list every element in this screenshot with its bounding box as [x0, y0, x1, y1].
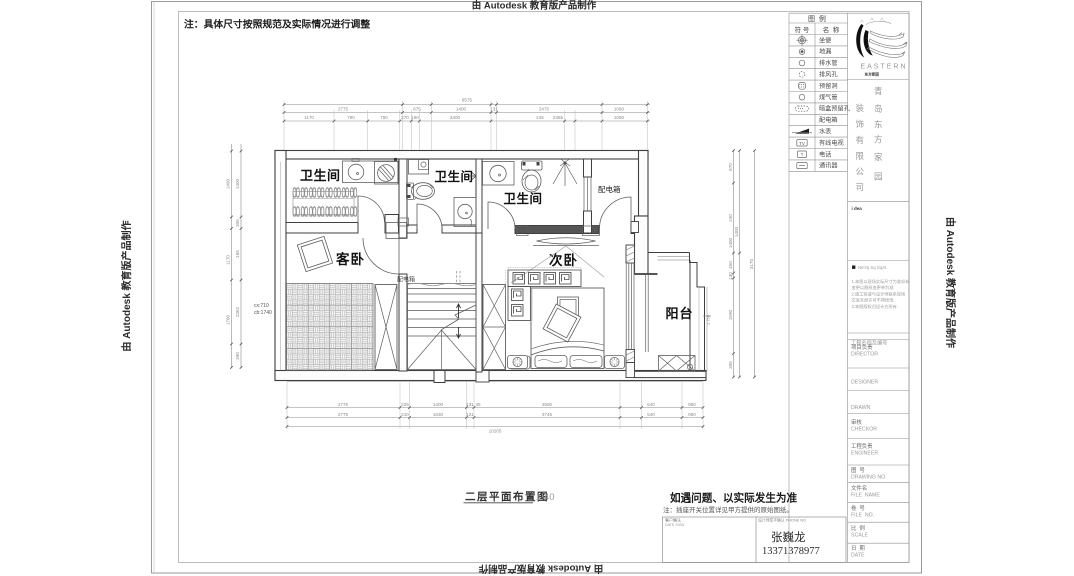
svg-text:排水管: 排水管 — [819, 59, 838, 67]
svg-text:由 Autodesk 教育版产品制作: 由 Autodesk 教育版产品制作 — [478, 563, 603, 575]
svg-text:1060: 1060 — [614, 107, 625, 112]
svg-text:T: T — [801, 152, 804, 157]
svg-text:i dea: i dea — [852, 206, 863, 211]
svg-text:2365: 2365 — [553, 115, 564, 120]
svg-text:1170: 1170 — [226, 255, 231, 265]
svg-text:790: 790 — [347, 115, 355, 120]
svg-text:方: 方 — [874, 135, 883, 145]
svg-text:2475: 2475 — [539, 107, 550, 112]
svg-text:卫生间: 卫生间 — [504, 191, 543, 206]
svg-text:2775: 2775 — [338, 402, 349, 407]
svg-text:DRAWN: DRAWN — [851, 405, 871, 411]
svg-text:2775: 2775 — [338, 412, 349, 417]
svg-text:注：具体尺寸按照规范及实际情况进行调整: 注：具体尺寸按照规范及实际情况进行调整 — [184, 18, 370, 31]
svg-text:ENGINEER: ENGINEER — [851, 451, 878, 457]
svg-text:1760: 1760 — [226, 314, 231, 325]
svg-text:交底未经许可不得修改.: 交底未经许可不得修改. — [852, 297, 895, 304]
svg-text:45: 45 — [475, 402, 481, 407]
svg-text:项目负责: 项目负责 — [851, 343, 873, 351]
svg-text:SCALE: SCALE — [851, 533, 869, 539]
svg-text:煤气管: 煤气管 — [819, 93, 838, 101]
svg-text:1.750: 1.750 — [706, 314, 711, 325]
svg-text:电话: 电话 — [819, 150, 831, 158]
svg-text:1400: 1400 — [235, 178, 240, 189]
svg-text:2362: 2362 — [235, 306, 240, 317]
svg-text:限: 限 — [856, 151, 865, 161]
svg-text:园: 园 — [874, 172, 883, 182]
svg-text:文件名: 文件名 — [851, 484, 867, 492]
svg-text:1490: 1490 — [226, 178, 231, 189]
svg-text:1:40: 1:40 — [536, 492, 555, 503]
svg-text:注：插座开关位置详见甲方提供的原始图纸。: 注：插座开关位置详见甲方提供的原始图纸。 — [663, 505, 793, 514]
svg-text:青: 青 — [874, 86, 883, 96]
svg-text:TV: TV — [799, 141, 805, 146]
svg-text:cb:1740: cb:1740 — [254, 310, 272, 316]
svg-text:DESIGNER: DESIGNER — [851, 380, 878, 386]
svg-text:2.施工前请与设计师联系现场: 2.施工前请与设计师联系现场 — [852, 290, 906, 297]
svg-text:450: 450 — [728, 261, 733, 269]
svg-text:240: 240 — [728, 214, 733, 222]
svg-text:1400: 1400 — [456, 107, 467, 112]
svg-text:2775: 2775 — [338, 107, 349, 112]
svg-text:390: 390 — [235, 352, 240, 360]
svg-text:司: 司 — [856, 182, 865, 192]
svg-text:210: 210 — [401, 412, 409, 417]
svg-text:由 Autodesk 教育版产品制作: 由 Autodesk 教育版产品制作 — [944, 217, 957, 348]
svg-text:cx:710: cx:710 — [254, 303, 269, 309]
svg-text:卫生间: 卫生间 — [435, 169, 474, 184]
svg-text:暗盒预留孔: 暗盒预留孔 — [819, 105, 850, 113]
svg-text:540: 540 — [647, 412, 655, 417]
svg-text:岛: 岛 — [874, 104, 883, 114]
svg-text:预留洞: 预留洞 — [819, 82, 838, 90]
svg-text:配电箱: 配电箱 — [819, 116, 838, 124]
svg-text:1400: 1400 — [728, 237, 733, 248]
svg-text:3.本图版权归设计方所有.: 3.本图版权归设计方所有. — [852, 303, 899, 310]
svg-text:图 例: 图 例 — [808, 14, 826, 23]
svg-text:DATE SIGN: DATE SIGN — [665, 523, 685, 527]
svg-text:阳台: 阳台 — [666, 306, 694, 321]
svg-text:670: 670 — [728, 163, 733, 171]
svg-text:165: 165 — [235, 250, 240, 258]
svg-text:坐便: 坐便 — [819, 36, 831, 44]
svg-text:750: 750 — [380, 115, 388, 120]
svg-text:装: 装 — [856, 103, 865, 113]
svg-text:东: 东 — [874, 120, 883, 130]
svg-text:FILE NAME: FILE NAME — [851, 493, 880, 499]
svg-text:水表: 水表 — [819, 128, 831, 136]
svg-text:245: 245 — [536, 115, 544, 120]
svg-text:东方家园: 东方家园 — [865, 72, 880, 77]
svg-text:排风孔: 排风孔 — [819, 71, 838, 79]
svg-text:675: 675 — [413, 107, 421, 112]
svg-text:符 号: 符 号 — [795, 25, 810, 34]
svg-text:由 Autodesk 教育版产品制作: 由 Autodesk 教育版产品制作 — [472, 0, 597, 12]
svg-text:有线电视: 有线电视 — [819, 139, 844, 147]
svg-text:131: 131 — [490, 107, 498, 112]
svg-text:3745: 3745 — [542, 412, 553, 417]
svg-text:1170: 1170 — [304, 115, 314, 120]
svg-text:卷 号: 卷 号 — [851, 504, 865, 512]
svg-text:家: 家 — [874, 152, 883, 162]
svg-text:1060: 1060 — [614, 115, 625, 120]
svg-text:270: 270 — [401, 115, 409, 120]
svg-text:3170: 3170 — [749, 258, 754, 269]
svg-text:工程负责: 工程负责 — [851, 442, 873, 450]
svg-text:190: 190 — [411, 115, 419, 120]
svg-text:13371378977: 13371378977 — [762, 546, 820, 557]
svg-text:如遇问题、以实际发生为准: 如遇问题、以实际发生为准 — [670, 492, 798, 505]
svg-text:980: 980 — [688, 402, 696, 407]
svg-text:1400: 1400 — [433, 402, 444, 407]
svg-text:305: 305 — [235, 219, 240, 227]
svg-text:DATE: DATE — [851, 553, 865, 559]
svg-text:225: 225 — [401, 402, 409, 407]
svg-text:客户确认: 客户确认 — [665, 517, 681, 523]
svg-text:3580: 3580 — [542, 402, 553, 407]
svg-text:131: 131 — [466, 402, 474, 407]
svg-text:公: 公 — [856, 167, 865, 177]
svg-text:名 称: 名 称 — [823, 25, 840, 34]
svg-text:通讯器: 通讯器 — [819, 162, 838, 170]
svg-text:审核: 审核 — [851, 418, 862, 426]
svg-text:3400: 3400 — [450, 115, 461, 120]
svg-text:配电箱: 配电箱 — [397, 276, 415, 284]
svg-text:由 Autodesk 教育版产品制作: 由 Autodesk 教育版产品制作 — [120, 220, 133, 351]
svg-text:配电箱: 配电箱 — [598, 184, 621, 194]
svg-text:日 期: 日 期 — [851, 545, 865, 552]
svg-text:1590: 1590 — [728, 309, 733, 320]
svg-text:1.本图以现场实际尺寸为准如有: 1.本图以现场实际尺寸为准如有 — [852, 278, 910, 285]
svg-text:比 例: 比 例 — [851, 524, 865, 532]
svg-text:EASTERN: EASTERN — [860, 64, 907, 71]
svg-text:饰: 饰 — [856, 119, 865, 129]
svg-text:540: 540 — [647, 402, 655, 407]
svg-text:121: 121 — [466, 412, 474, 417]
svg-text:DIRECTOR: DIRECTOR — [851, 352, 878, 358]
svg-text:DRAWING NO.: DRAWING NO. — [851, 475, 887, 481]
svg-text:8575: 8575 — [462, 98, 473, 103]
svg-text:图 号: 图 号 — [851, 466, 865, 474]
svg-text:980: 980 — [688, 412, 696, 417]
svg-text:NmYq Sq GqAt: NmYq Sq GqAt — [858, 265, 887, 270]
svg-text:305: 305 — [728, 361, 733, 369]
svg-text:10205: 10205 — [489, 429, 502, 434]
svg-text:有: 有 — [856, 135, 865, 145]
svg-text:CHECKOR: CHECKOR — [851, 427, 877, 433]
svg-text:1630: 1630 — [433, 412, 444, 417]
svg-text:地漏: 地漏 — [819, 48, 831, 56]
svg-text:设计师签字确认 PHONE NO.: 设计师签字确认 PHONE NO. — [758, 518, 807, 523]
svg-text:卫生间: 卫生间 — [300, 168, 341, 183]
svg-text:FILE NO.: FILE NO. — [851, 513, 874, 519]
svg-text:1400: 1400 — [734, 226, 739, 237]
svg-text:变更以图纸变更单为准.: 变更以图纸变更单为准. — [852, 284, 895, 291]
svg-text:客卧: 客卧 — [335, 251, 365, 267]
svg-text:张巍龙: 张巍龙 — [771, 531, 806, 544]
svg-text:130: 130 — [728, 272, 733, 280]
